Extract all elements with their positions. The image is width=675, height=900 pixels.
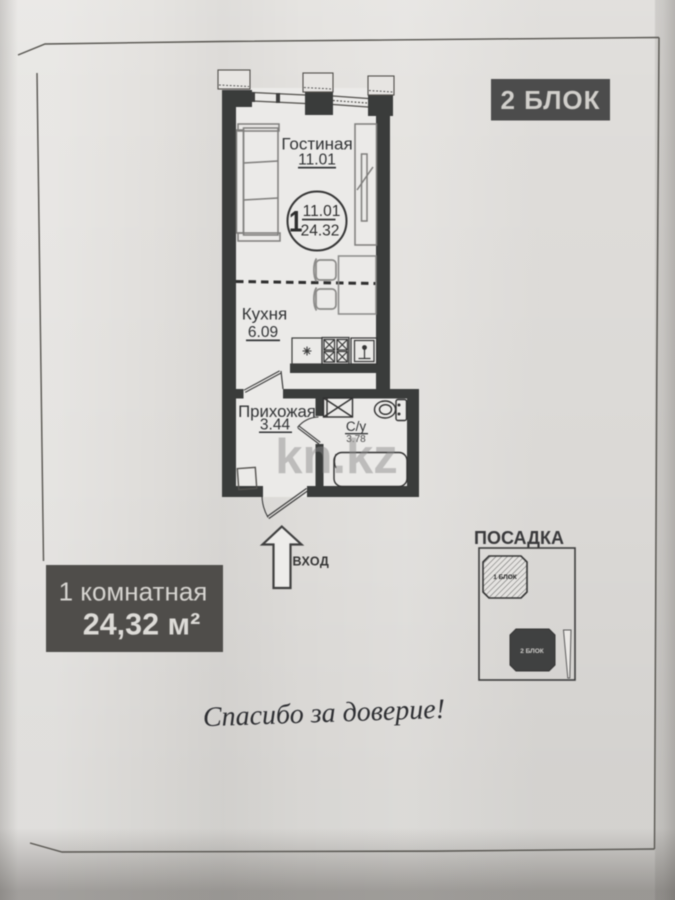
svg-text:11.01: 11.01 [298,152,336,169]
svg-text:ПОСАДКА: ПОСАДКА [474,528,564,548]
svg-text:24,32 м²: 24,32 м² [83,608,201,642]
svg-text:11.01: 11.01 [303,203,341,220]
svg-text:Кухня: Кухня [242,305,288,324]
svg-text:Спасибо за доверие!: Спасибо за доверие! [202,694,445,733]
svg-text:1 БЛОК: 1 БЛОК [493,574,517,581]
svg-text:24.32: 24.32 [301,223,340,240]
svg-text:2 БЛОК: 2 БЛОК [500,85,600,115]
svg-text:ВХОД: ВХОД [293,555,330,569]
svg-text:kn.kz: kn.kz [275,430,398,484]
svg-text:1 комнатная: 1 комнатная [59,577,208,607]
svg-text:6.09: 6.09 [248,324,278,341]
svg-text:2 БЛОК: 2 БЛОК [520,648,544,655]
